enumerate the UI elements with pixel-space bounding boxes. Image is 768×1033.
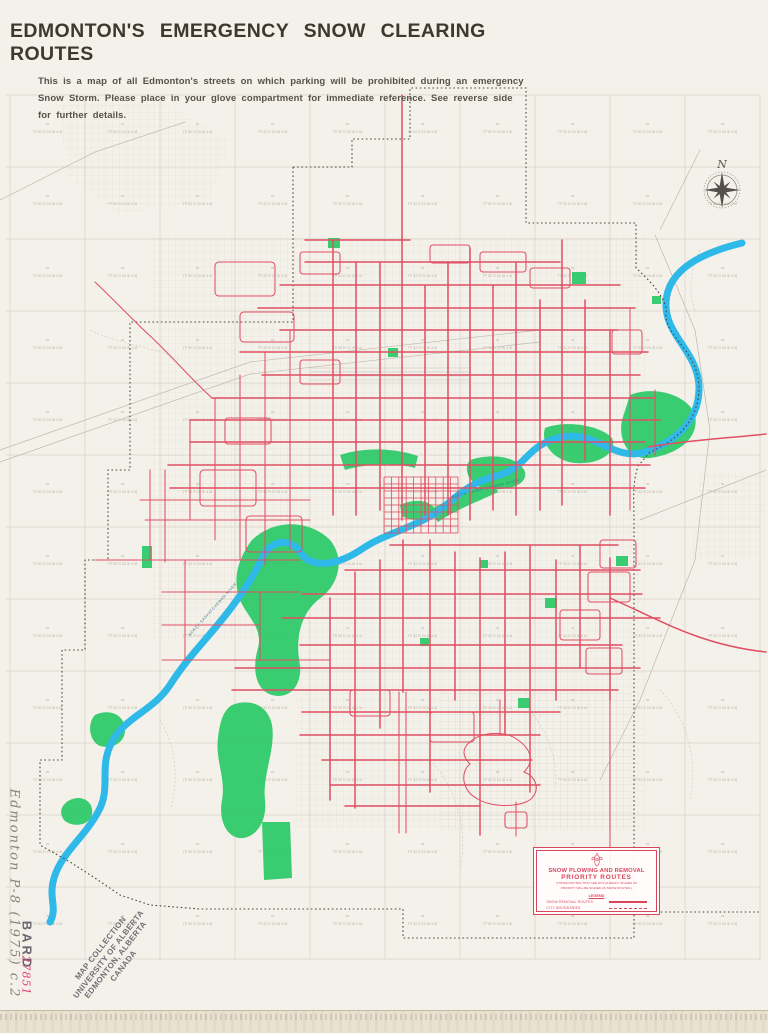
svg-text:33: 33 (271, 194, 275, 198)
svg-text:33: 33 (46, 554, 50, 558)
svg-text:33: 33 (271, 770, 275, 774)
svg-text:TP 52 R 24 W 4 M: TP 52 R 24 W 4 M (33, 706, 63, 710)
svg-text:33: 33 (121, 626, 125, 630)
svg-text:33: 33 (271, 914, 275, 918)
legend-item-swatch (609, 908, 647, 909)
svg-text:33: 33 (646, 842, 650, 846)
svg-text:33: 33 (571, 194, 575, 198)
svg-text:TP 52 R 24 W 4 M: TP 52 R 24 W 4 M (33, 274, 63, 278)
city-crest-icon (588, 853, 606, 868)
scan-edge-strip (0, 1010, 768, 1033)
svg-text:TP 52 R 24 W 4 M: TP 52 R 24 W 4 M (108, 562, 138, 566)
svg-text:33: 33 (46, 410, 50, 414)
svg-text:TP 52 R 24 W 4 M: TP 52 R 24 W 4 M (33, 202, 63, 206)
svg-text:TP 52 R 24 W 4 M: TP 52 R 24 W 4 M (708, 850, 738, 854)
svg-text:TP 52 R 24 W 4 M: TP 52 R 24 W 4 M (708, 418, 738, 422)
description-line: for further details. (38, 107, 570, 124)
svg-text:33: 33 (646, 554, 650, 558)
svg-text:33: 33 (196, 914, 200, 918)
svg-text:33: 33 (121, 410, 125, 414)
svg-text:33: 33 (721, 410, 725, 414)
page-title: EDMONTON'S EMERGENCY SNOW CLEARING ROUTE… (10, 20, 570, 66)
svg-text:33: 33 (646, 698, 650, 702)
svg-text:33: 33 (646, 122, 650, 126)
svg-text:TP 52 R 24 W 4 M: TP 52 R 24 W 4 M (183, 922, 213, 926)
svg-text:33: 33 (421, 914, 425, 918)
svg-text:33: 33 (121, 770, 125, 774)
legend-heading: LEGEND (589, 894, 605, 898)
svg-text:33: 33 (646, 194, 650, 198)
svg-text:33: 33 (646, 338, 650, 342)
svg-text:33: 33 (46, 770, 50, 774)
description-line: This is a map of all Edmonton's streets … (38, 73, 570, 90)
svg-text:33: 33 (721, 698, 725, 702)
svg-text:33: 33 (496, 194, 500, 198)
svg-text:TP 52 R 24 W 4 M: TP 52 R 24 W 4 M (183, 706, 213, 710)
svg-text:33: 33 (46, 842, 50, 846)
svg-text:33: 33 (721, 626, 725, 630)
svg-text:33: 33 (646, 482, 650, 486)
compass-rose: N (704, 158, 740, 208)
svg-text:33: 33 (196, 698, 200, 702)
svg-text:TP 52 R 24 W 4 M: TP 52 R 24 W 4 M (108, 706, 138, 710)
svg-text:TP 52 R 24 W 4 M: TP 52 R 24 W 4 M (333, 130, 363, 134)
svg-text:TP 52 R 24 W 4 M: TP 52 R 24 W 4 M (108, 850, 138, 854)
svg-text:TP 52 R 24 W 4 M: TP 52 R 24 W 4 M (483, 922, 513, 926)
svg-text:TP 52 R 24 W 4 M: TP 52 R 24 W 4 M (408, 922, 438, 926)
svg-text:TP 52 R 24 W 4 M: TP 52 R 24 W 4 M (333, 922, 363, 926)
svg-text:TP 52 R 24 W 4 M: TP 52 R 24 W 4 M (33, 562, 63, 566)
svg-text:TP 52 R 24 W 4 M: TP 52 R 24 W 4 M (183, 850, 213, 854)
svg-text:TP 52 R 24 W 4 M: TP 52 R 24 W 4 M (33, 778, 63, 782)
svg-text:TP 52 R 24 W 4 M: TP 52 R 24 W 4 M (108, 490, 138, 494)
svg-text:33: 33 (46, 194, 50, 198)
legend-box: SNOW PLOWING AND REMOVAL PRIORITY ROUTES… (533, 847, 660, 915)
svg-text:33: 33 (46, 698, 50, 702)
svg-text:33: 33 (46, 626, 50, 630)
legend-item-swatch (609, 901, 647, 903)
svg-text:33: 33 (721, 266, 725, 270)
legend-title-line1: SNOW PLOWING AND REMOVAL (548, 868, 644, 875)
svg-text:33: 33 (421, 194, 425, 198)
svg-text:33: 33 (646, 266, 650, 270)
svg-text:33: 33 (721, 338, 725, 342)
svg-text:TP 52 R 24 W 4 M: TP 52 R 24 W 4 M (558, 130, 588, 134)
svg-text:TP 52 R 24 W 4 M: TP 52 R 24 W 4 M (33, 130, 63, 134)
legend-item-label: CITY BOUNDARIES (547, 905, 581, 911)
svg-text:TP 52 R 24 W 4 M: TP 52 R 24 W 4 M (258, 922, 288, 926)
svg-text:33: 33 (121, 266, 125, 270)
svg-text:TP 52 R 24 W 4 M: TP 52 R 24 W 4 M (33, 346, 63, 350)
legend-item: CITY BOUNDARIES (547, 905, 647, 911)
svg-text:33: 33 (346, 914, 350, 918)
svg-text:TP 52 R 24 W 4 M: TP 52 R 24 W 4 M (708, 346, 738, 350)
svg-text:TP 52 R 24 W 4 M: TP 52 R 24 W 4 M (708, 274, 738, 278)
svg-text:TP 52 R 24 W 4 M: TP 52 R 24 W 4 M (108, 634, 138, 638)
svg-text:TP 52 R 24 W 4 M: TP 52 R 24 W 4 M (33, 850, 63, 854)
svg-text:33: 33 (496, 914, 500, 918)
svg-text:TP 52 R 24 W 4 M: TP 52 R 24 W 4 M (333, 202, 363, 206)
legend-items: SNOW REMOVAL ROUTESCITY BOUNDARIES (547, 899, 647, 911)
svg-text:TP 52 R 24 W 4 M: TP 52 R 24 W 4 M (33, 490, 63, 494)
svg-text:TP 52 R 24 W 4 M: TP 52 R 24 W 4 M (483, 130, 513, 134)
svg-text:TP 52 R 24 W 4 M: TP 52 R 24 W 4 M (483, 850, 513, 854)
map-description: This is a map of all Edmonton's streets … (38, 73, 570, 124)
svg-text:TP 52 R 24 W 4 M: TP 52 R 24 W 4 M (633, 202, 663, 206)
svg-text:33: 33 (646, 770, 650, 774)
svg-text:TP 52 R 24 W 4 M: TP 52 R 24 W 4 M (633, 130, 663, 134)
legend-note-line2: PRIORITY WILL BE SIGNED AS SNOW ROUTES.) (561, 887, 632, 891)
svg-text:TP 52 R 24 W 4 M: TP 52 R 24 W 4 M (558, 922, 588, 926)
legend-title-line2: PRIORITY ROUTES (561, 874, 631, 881)
svg-text:33: 33 (121, 482, 125, 486)
svg-text:33: 33 (496, 842, 500, 846)
svg-text:33: 33 (346, 194, 350, 198)
svg-text:33: 33 (196, 770, 200, 774)
svg-text:33: 33 (721, 842, 725, 846)
svg-text:33: 33 (46, 338, 50, 342)
svg-text:33: 33 (196, 842, 200, 846)
svg-text:TP 52 R 24 W 4 M: TP 52 R 24 W 4 M (708, 130, 738, 134)
accession-number: 27851 (20, 946, 33, 1006)
svg-text:33: 33 (271, 698, 275, 702)
svg-text:TP 52 R 24 W 4 M: TP 52 R 24 W 4 M (558, 202, 588, 206)
svg-text:TP 52 R 24 W 4 M: TP 52 R 24 W 4 M (708, 562, 738, 566)
compass-north-label: N (716, 158, 727, 171)
svg-text:TP 52 R 24 W 4 M: TP 52 R 24 W 4 M (108, 274, 138, 278)
description-line: Snow Storm. Please place in your glove c… (38, 90, 570, 107)
svg-text:TP 52 R 24 W 4 M: TP 52 R 24 W 4 M (408, 850, 438, 854)
svg-text:33: 33 (121, 554, 125, 558)
svg-text:TP 52 R 24 W 4 M: TP 52 R 24 W 4 M (708, 778, 738, 782)
svg-text:TP 52 R 24 W 4 M: TP 52 R 24 W 4 M (708, 922, 738, 926)
svg-text:33: 33 (721, 122, 725, 126)
svg-text:33: 33 (571, 842, 575, 846)
svg-text:33: 33 (46, 482, 50, 486)
svg-text:33: 33 (571, 122, 575, 126)
svg-text:TP 52 R 24 W 4 M: TP 52 R 24 W 4 M (408, 202, 438, 206)
svg-text:TP 52 R 24 W 4 M: TP 52 R 24 W 4 M (108, 778, 138, 782)
svg-text:33: 33 (346, 842, 350, 846)
svg-text:33: 33 (721, 914, 725, 918)
svg-text:TP 52 R 24 W 4 M: TP 52 R 24 W 4 M (333, 850, 363, 854)
svg-text:TP 52 R 24 W 4 M: TP 52 R 24 W 4 M (33, 634, 63, 638)
svg-text:TP 52 R 24 W 4 M: TP 52 R 24 W 4 M (108, 346, 138, 350)
svg-text:TP 52 R 24 W 4 M: TP 52 R 24 W 4 M (708, 634, 738, 638)
svg-text:33: 33 (121, 842, 125, 846)
svg-text:TP 52 R 24 W 4 M: TP 52 R 24 W 4 M (33, 418, 63, 422)
svg-text:33: 33 (121, 698, 125, 702)
svg-text:TP 52 R 24 W 4 M: TP 52 R 24 W 4 M (633, 922, 663, 926)
svg-text:TP 52 R 24 W 4 M: TP 52 R 24 W 4 M (258, 202, 288, 206)
svg-text:33: 33 (646, 626, 650, 630)
svg-text:TP 52 R 24 W 4 M: TP 52 R 24 W 4 M (258, 130, 288, 134)
svg-text:33: 33 (46, 266, 50, 270)
map-header: EDMONTON'S EMERGENCY SNOW CLEARING ROUTE… (10, 20, 570, 124)
svg-text:TP 52 R 24 W 4 M: TP 52 R 24 W 4 M (408, 130, 438, 134)
svg-text:TP 52 R 24 W 4 M: TP 52 R 24 W 4 M (183, 778, 213, 782)
svg-text:TP 52 R 24 W 4 M: TP 52 R 24 W 4 M (708, 706, 738, 710)
svg-text:33: 33 (721, 770, 725, 774)
svg-text:33: 33 (421, 842, 425, 846)
svg-text:TP 52 R 24 W 4 M: TP 52 R 24 W 4 M (483, 202, 513, 206)
